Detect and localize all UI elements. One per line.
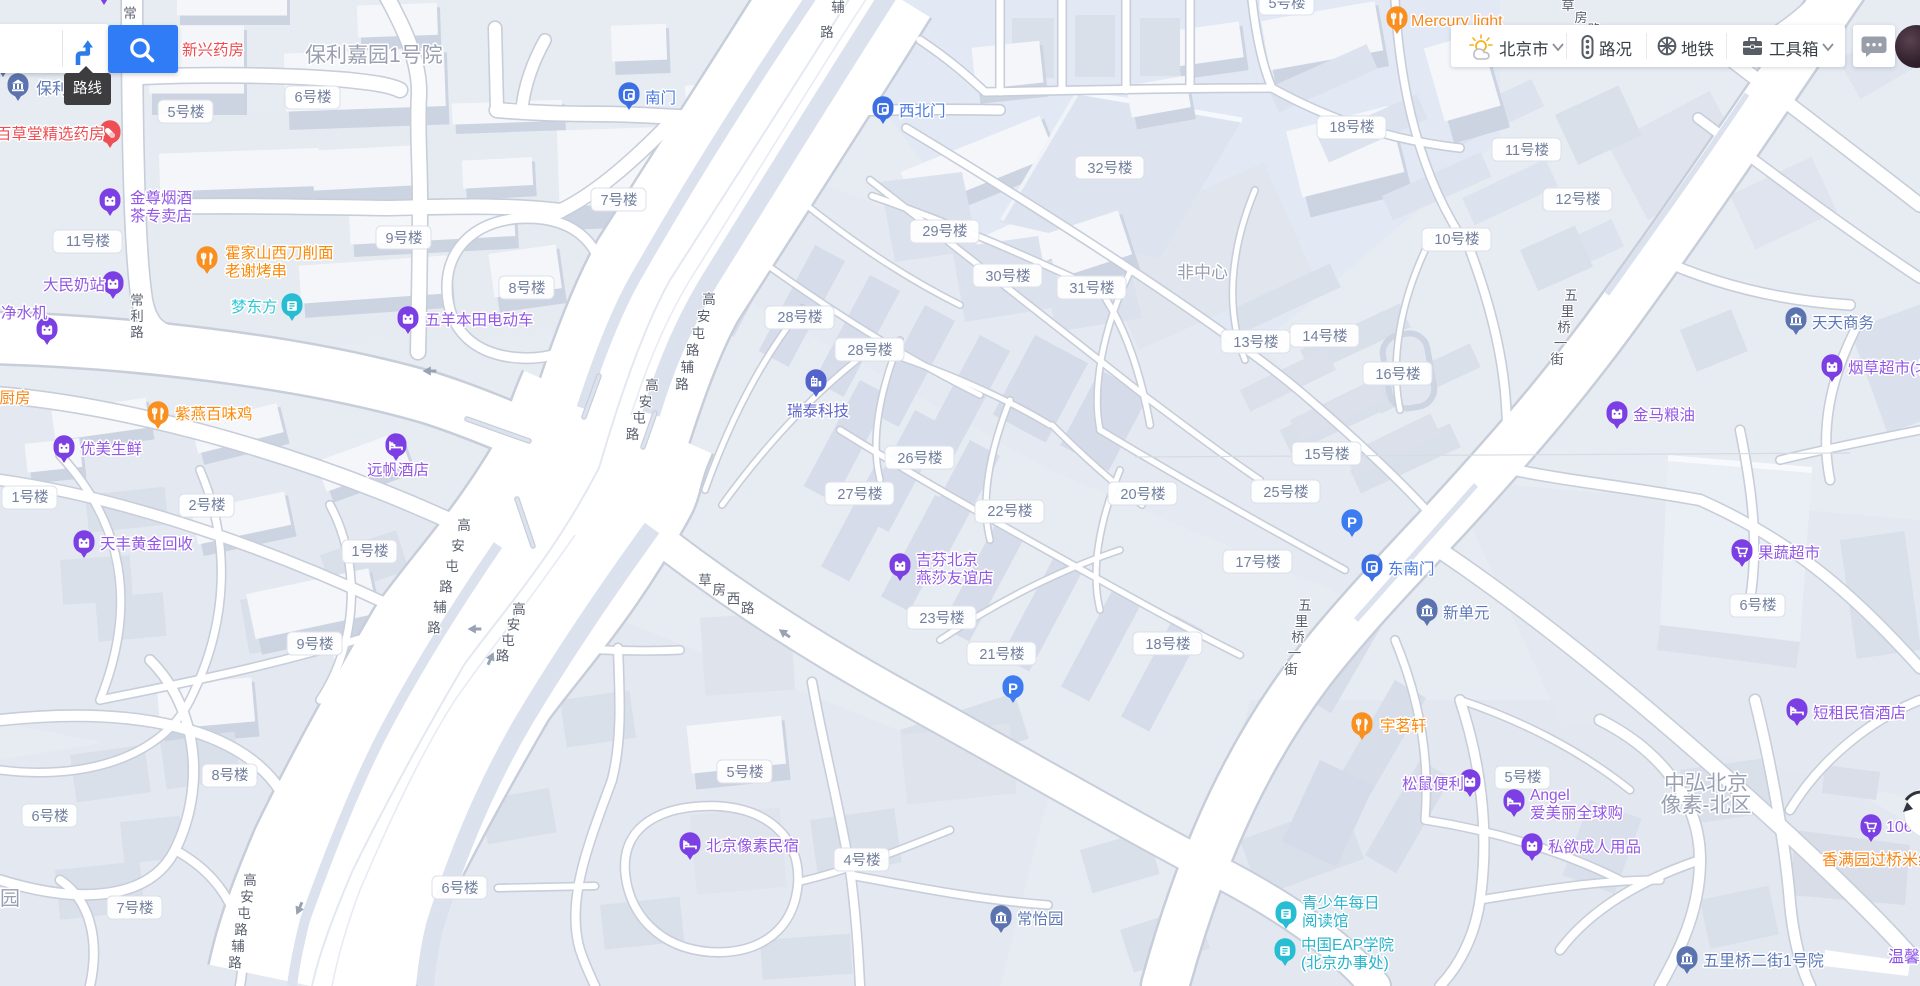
svg-text:屯: 屯 xyxy=(501,633,515,648)
svg-text:11号楼: 11号楼 xyxy=(1505,142,1549,159)
svg-text:中弘北京: 中弘北京 xyxy=(1664,772,1748,795)
svg-text:13号楼: 13号楼 xyxy=(1233,334,1278,351)
svg-text:6号楼: 6号楼 xyxy=(31,808,68,825)
svg-text:5号楼: 5号楼 xyxy=(1268,0,1305,12)
svg-text:8号楼: 8号楼 xyxy=(508,280,545,297)
svg-text:安: 安 xyxy=(639,394,653,409)
svg-text:安: 安 xyxy=(507,618,521,633)
svg-text:阅读馆: 阅读馆 xyxy=(1302,912,1349,930)
svg-text:28号楼: 28号楼 xyxy=(777,309,822,326)
svg-text:宇茗轩: 宇茗轩 xyxy=(1380,717,1427,735)
svg-text:路: 路 xyxy=(130,325,144,340)
svg-text:辅: 辅 xyxy=(831,0,845,15)
svg-text:西: 西 xyxy=(727,592,741,607)
svg-text:31号楼: 31号楼 xyxy=(1069,280,1114,297)
svg-text:屯: 屯 xyxy=(237,906,251,921)
svg-text:17号楼: 17号楼 xyxy=(1235,554,1280,571)
svg-text:一: 一 xyxy=(1554,336,1568,351)
svg-text:香满园过桥米线: 香满园过桥米线 xyxy=(1822,851,1920,869)
svg-text:5号楼: 5号楼 xyxy=(167,104,204,121)
svg-text:22号楼: 22号楼 xyxy=(987,503,1032,520)
svg-text:瑞泰科技: 瑞泰科技 xyxy=(787,402,849,420)
svg-text:18号楼: 18号楼 xyxy=(1145,636,1190,653)
svg-text:9号楼: 9号楼 xyxy=(385,230,422,247)
svg-text:安: 安 xyxy=(451,539,465,554)
svg-text:爱美丽全球购: 爱美丽全球购 xyxy=(1530,804,1623,822)
svg-text:非中心: 非中心 xyxy=(1177,263,1228,282)
svg-text:屯: 屯 xyxy=(445,559,459,574)
svg-text:28号楼: 28号楼 xyxy=(847,342,892,359)
svg-text:6号楼: 6号楼 xyxy=(441,880,478,897)
svg-text:屯: 屯 xyxy=(691,326,705,341)
svg-text:25号楼: 25号楼 xyxy=(1263,484,1308,501)
svg-text:路: 路 xyxy=(675,377,689,392)
svg-text:大民奶站: 大民奶站 xyxy=(43,276,105,294)
svg-text:梦东方: 梦东方 xyxy=(231,298,278,316)
svg-text:温馨: 温馨 xyxy=(1888,948,1920,966)
svg-text:利: 利 xyxy=(130,309,144,324)
svg-text:高: 高 xyxy=(243,872,257,888)
svg-text:保利嘉园1号院: 保利嘉园1号院 xyxy=(305,44,443,67)
svg-text:屯: 屯 xyxy=(632,411,646,426)
svg-text:老谢烤串: 老谢烤串 xyxy=(225,262,287,280)
svg-text:南门: 南门 xyxy=(645,89,676,107)
svg-text:金尊烟酒: 金尊烟酒 xyxy=(130,189,192,207)
svg-text:1号楼: 1号楼 xyxy=(351,543,388,560)
svg-text:新兴药房: 新兴药房 xyxy=(182,41,244,59)
svg-text:五里桥二街1号院: 五里桥二街1号院 xyxy=(1703,952,1824,970)
svg-text:辅: 辅 xyxy=(433,600,447,615)
svg-text:桥: 桥 xyxy=(1291,630,1305,645)
svg-text:(北京办事处): (北京办事处) xyxy=(1301,954,1389,972)
svg-text:天天商务: 天天商务 xyxy=(1812,314,1874,332)
svg-text:常: 常 xyxy=(123,6,137,21)
svg-text:草: 草 xyxy=(1561,0,1574,13)
svg-text:1号楼: 1号楼 xyxy=(11,489,48,506)
svg-text:远帆酒店: 远帆酒店 xyxy=(367,461,429,479)
svg-text:路: 路 xyxy=(234,923,248,938)
svg-text:街: 街 xyxy=(1550,352,1564,367)
svg-text:路: 路 xyxy=(741,601,755,616)
svg-text:高: 高 xyxy=(512,601,526,617)
svg-text:14号楼: 14号楼 xyxy=(1302,328,1347,345)
svg-text:26号楼: 26号楼 xyxy=(897,450,942,467)
svg-text:五羊本田电动车: 五羊本田电动车 xyxy=(425,311,534,329)
svg-text:霍家山西刀削面: 霍家山西刀削面 xyxy=(225,244,334,262)
svg-text:路: 路 xyxy=(439,580,453,595)
svg-text:路: 路 xyxy=(686,343,700,358)
svg-text:西北门: 西北门 xyxy=(899,102,946,120)
svg-text:15号楼: 15号楼 xyxy=(1304,446,1349,463)
svg-text:5号楼: 5号楼 xyxy=(1504,769,1541,786)
svg-text:松鼠便利: 松鼠便利 xyxy=(1402,775,1464,793)
svg-text:里: 里 xyxy=(1561,304,1575,319)
svg-text:新单元: 新单元 xyxy=(1443,604,1490,622)
svg-text:20号楼: 20号楼 xyxy=(1120,486,1165,503)
svg-text:东南门: 东南门 xyxy=(1388,560,1435,578)
svg-text:五: 五 xyxy=(1298,598,1312,613)
svg-text:园: 园 xyxy=(0,888,20,910)
svg-text:净水机: 净水机 xyxy=(1,304,48,322)
svg-text:像素-北区: 像素-北区 xyxy=(1661,794,1752,817)
svg-text:吉芬北京: 吉芬北京 xyxy=(916,551,978,569)
svg-text:果蔬超市: 果蔬超市 xyxy=(1758,544,1820,562)
svg-text:8号楼: 8号楼 xyxy=(211,767,248,784)
svg-text:茶专卖店: 茶专卖店 xyxy=(130,207,192,225)
svg-text:短租民宿酒店: 短租民宿酒店 xyxy=(1813,704,1906,722)
svg-text:房: 房 xyxy=(713,582,727,597)
svg-text:五: 五 xyxy=(1564,288,1578,303)
svg-text:街: 街 xyxy=(1284,662,1298,677)
svg-text:优美生鲜: 优美生鲜 xyxy=(80,440,142,458)
svg-text:4号楼: 4号楼 xyxy=(843,852,880,869)
svg-text:5号楼: 5号楼 xyxy=(726,764,763,781)
svg-text:房: 房 xyxy=(1574,10,1587,25)
svg-text:路: 路 xyxy=(820,25,834,40)
svg-text:7号楼: 7号楼 xyxy=(116,900,153,917)
svg-text:10号楼: 10号楼 xyxy=(1434,231,1479,248)
svg-text:29号楼: 29号楼 xyxy=(922,223,967,240)
svg-text:路: 路 xyxy=(427,621,441,636)
svg-text:金马粮油: 金马粮油 xyxy=(1633,406,1695,424)
svg-text:32号楼: 32号楼 xyxy=(1087,160,1132,177)
svg-text:30号楼: 30号楼 xyxy=(985,268,1030,285)
svg-text:安: 安 xyxy=(697,309,711,324)
svg-text:2号楼: 2号楼 xyxy=(188,497,225,514)
svg-text:6号楼: 6号楼 xyxy=(1739,597,1776,614)
svg-text:一: 一 xyxy=(1288,646,1302,661)
svg-text:北京像素民宿: 北京像素民宿 xyxy=(706,837,799,855)
svg-text:食厨房: 食厨房 xyxy=(0,389,31,407)
svg-text:辅: 辅 xyxy=(681,360,695,375)
svg-text:常怡园: 常怡园 xyxy=(1017,910,1064,928)
svg-text:11号楼: 11号楼 xyxy=(66,233,110,250)
svg-text:16号楼: 16号楼 xyxy=(1375,366,1420,383)
svg-text:桥: 桥 xyxy=(1557,320,1571,335)
svg-text:高: 高 xyxy=(702,291,716,307)
svg-text:中国EAP学院: 中国EAP学院 xyxy=(1301,935,1394,954)
svg-text:高: 高 xyxy=(645,377,659,393)
svg-text:天丰黄金回收: 天丰黄金回收 xyxy=(100,535,193,553)
svg-text:7号楼: 7号楼 xyxy=(600,192,637,209)
svg-text:18号楼: 18号楼 xyxy=(1329,119,1374,136)
svg-text:12号楼: 12号楼 xyxy=(1555,191,1600,208)
svg-text:路: 路 xyxy=(626,427,640,442)
svg-text:烟草超市(北: 烟草超市(北 xyxy=(1848,359,1920,377)
svg-text:青少年每日: 青少年每日 xyxy=(1302,894,1380,912)
svg-text:路: 路 xyxy=(496,649,510,664)
svg-text:燕莎友谊店: 燕莎友谊店 xyxy=(916,569,994,587)
svg-text:里: 里 xyxy=(1295,614,1309,629)
svg-text:紫燕百味鸡: 紫燕百味鸡 xyxy=(175,405,253,423)
svg-text:百草堂精选药房: 百草堂精选药房 xyxy=(0,125,105,143)
svg-text:Angel: Angel xyxy=(1530,787,1570,804)
svg-text:常: 常 xyxy=(130,293,144,308)
svg-text:安: 安 xyxy=(240,890,254,905)
svg-text:9号楼: 9号楼 xyxy=(296,636,333,653)
svg-text:路: 路 xyxy=(228,956,242,971)
svg-text:21号楼: 21号楼 xyxy=(979,646,1024,663)
svg-text:私欲成人用品: 私欲成人用品 xyxy=(1548,838,1641,856)
svg-text:高: 高 xyxy=(457,517,471,533)
svg-text:6号楼: 6号楼 xyxy=(294,89,331,106)
svg-text:23号楼: 23号楼 xyxy=(919,610,964,627)
svg-text:辅: 辅 xyxy=(231,939,245,954)
svg-text:27号楼: 27号楼 xyxy=(837,486,882,503)
svg-text:草: 草 xyxy=(698,573,712,588)
